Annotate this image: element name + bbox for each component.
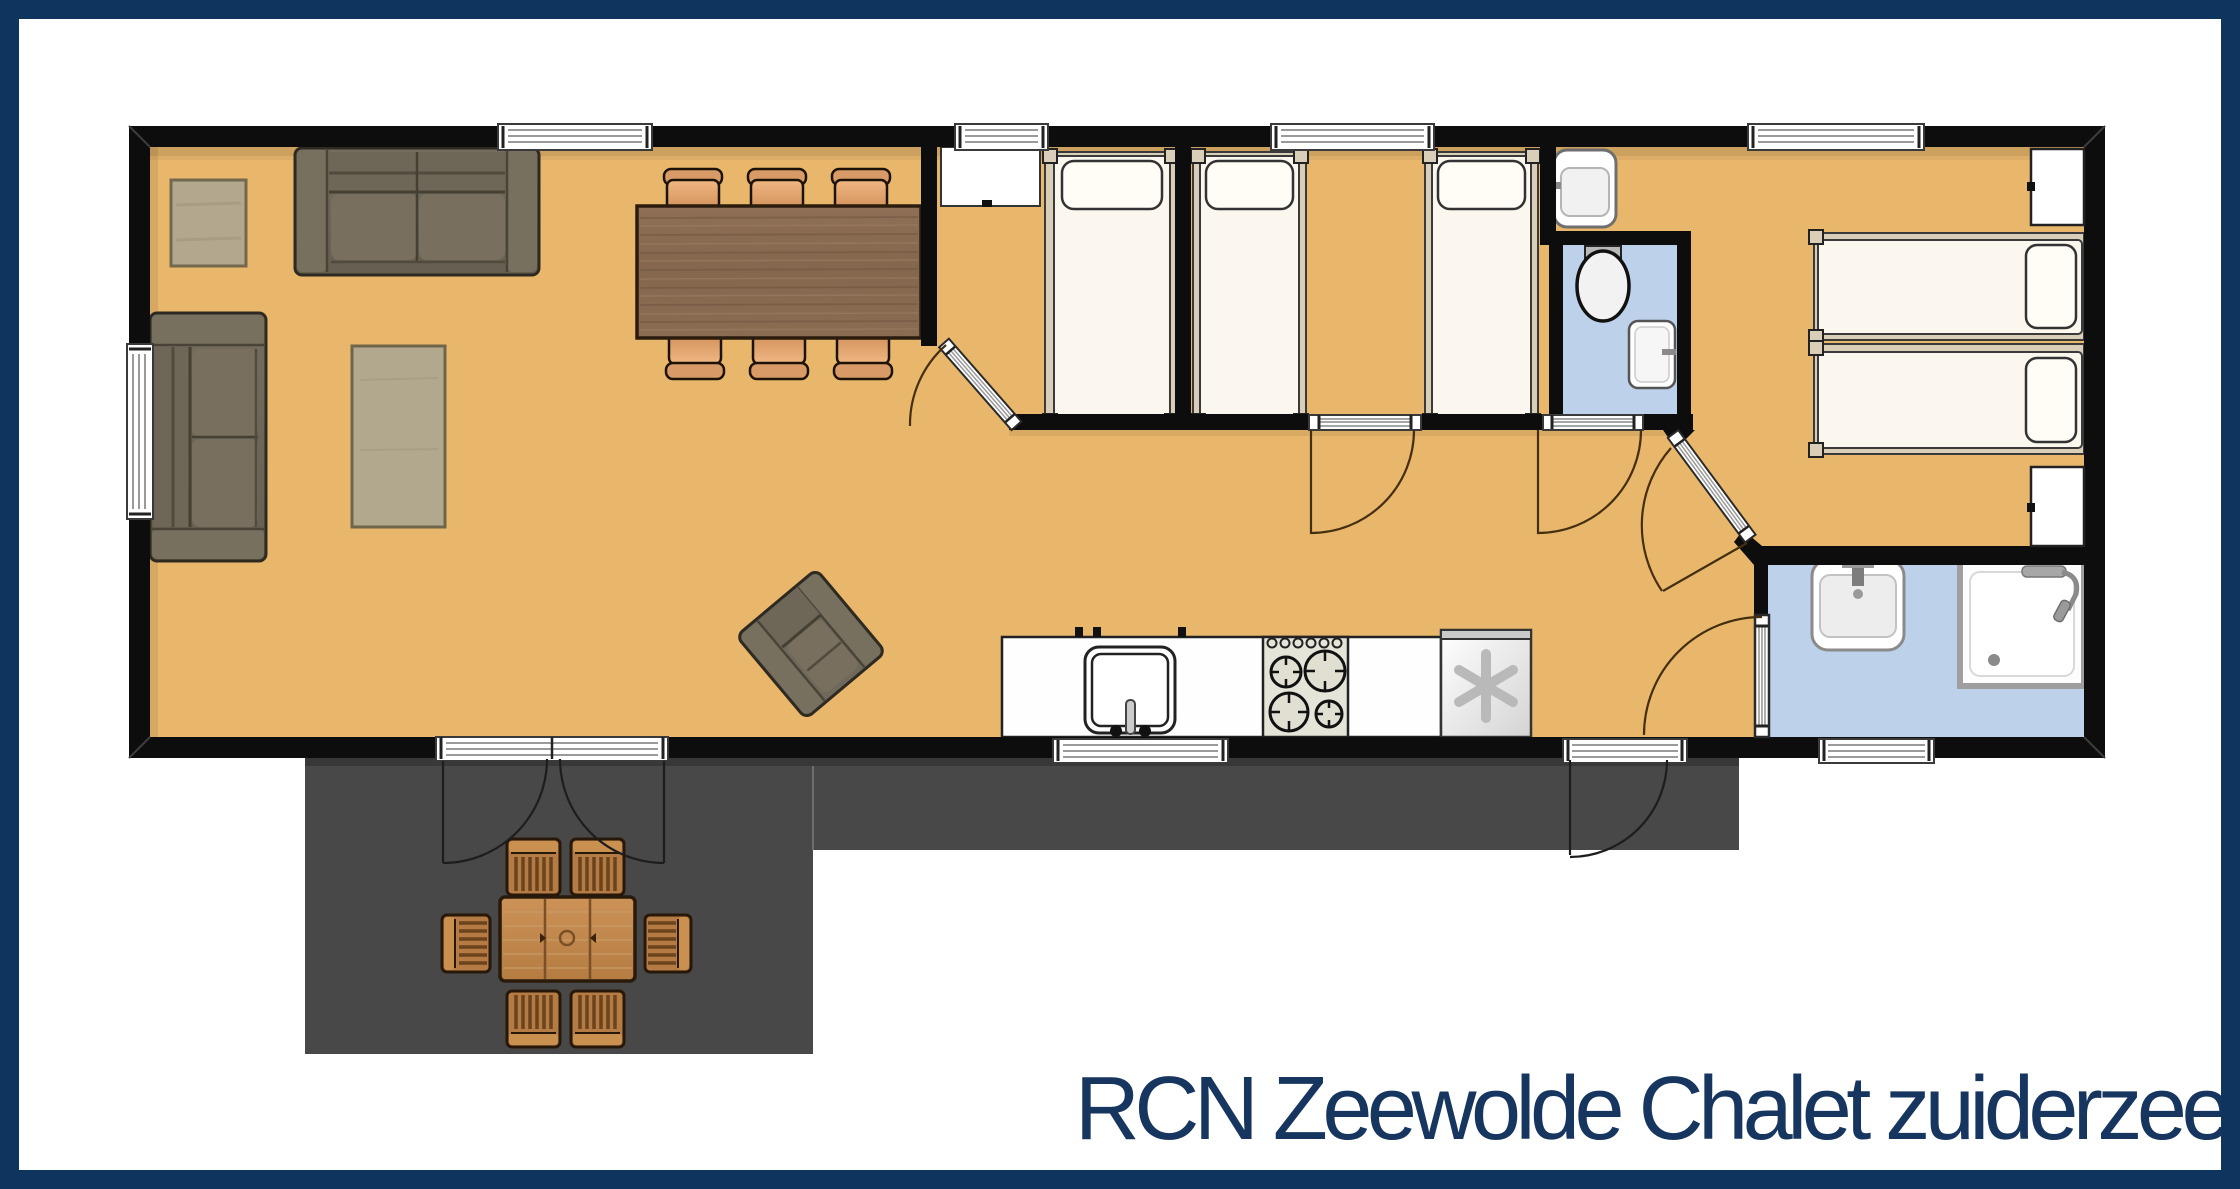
svg-text:RCN Zeewolde Chalet zuiderzee: RCN Zeewolde Chalet zuiderzee bbox=[1075, 1059, 2229, 1159]
